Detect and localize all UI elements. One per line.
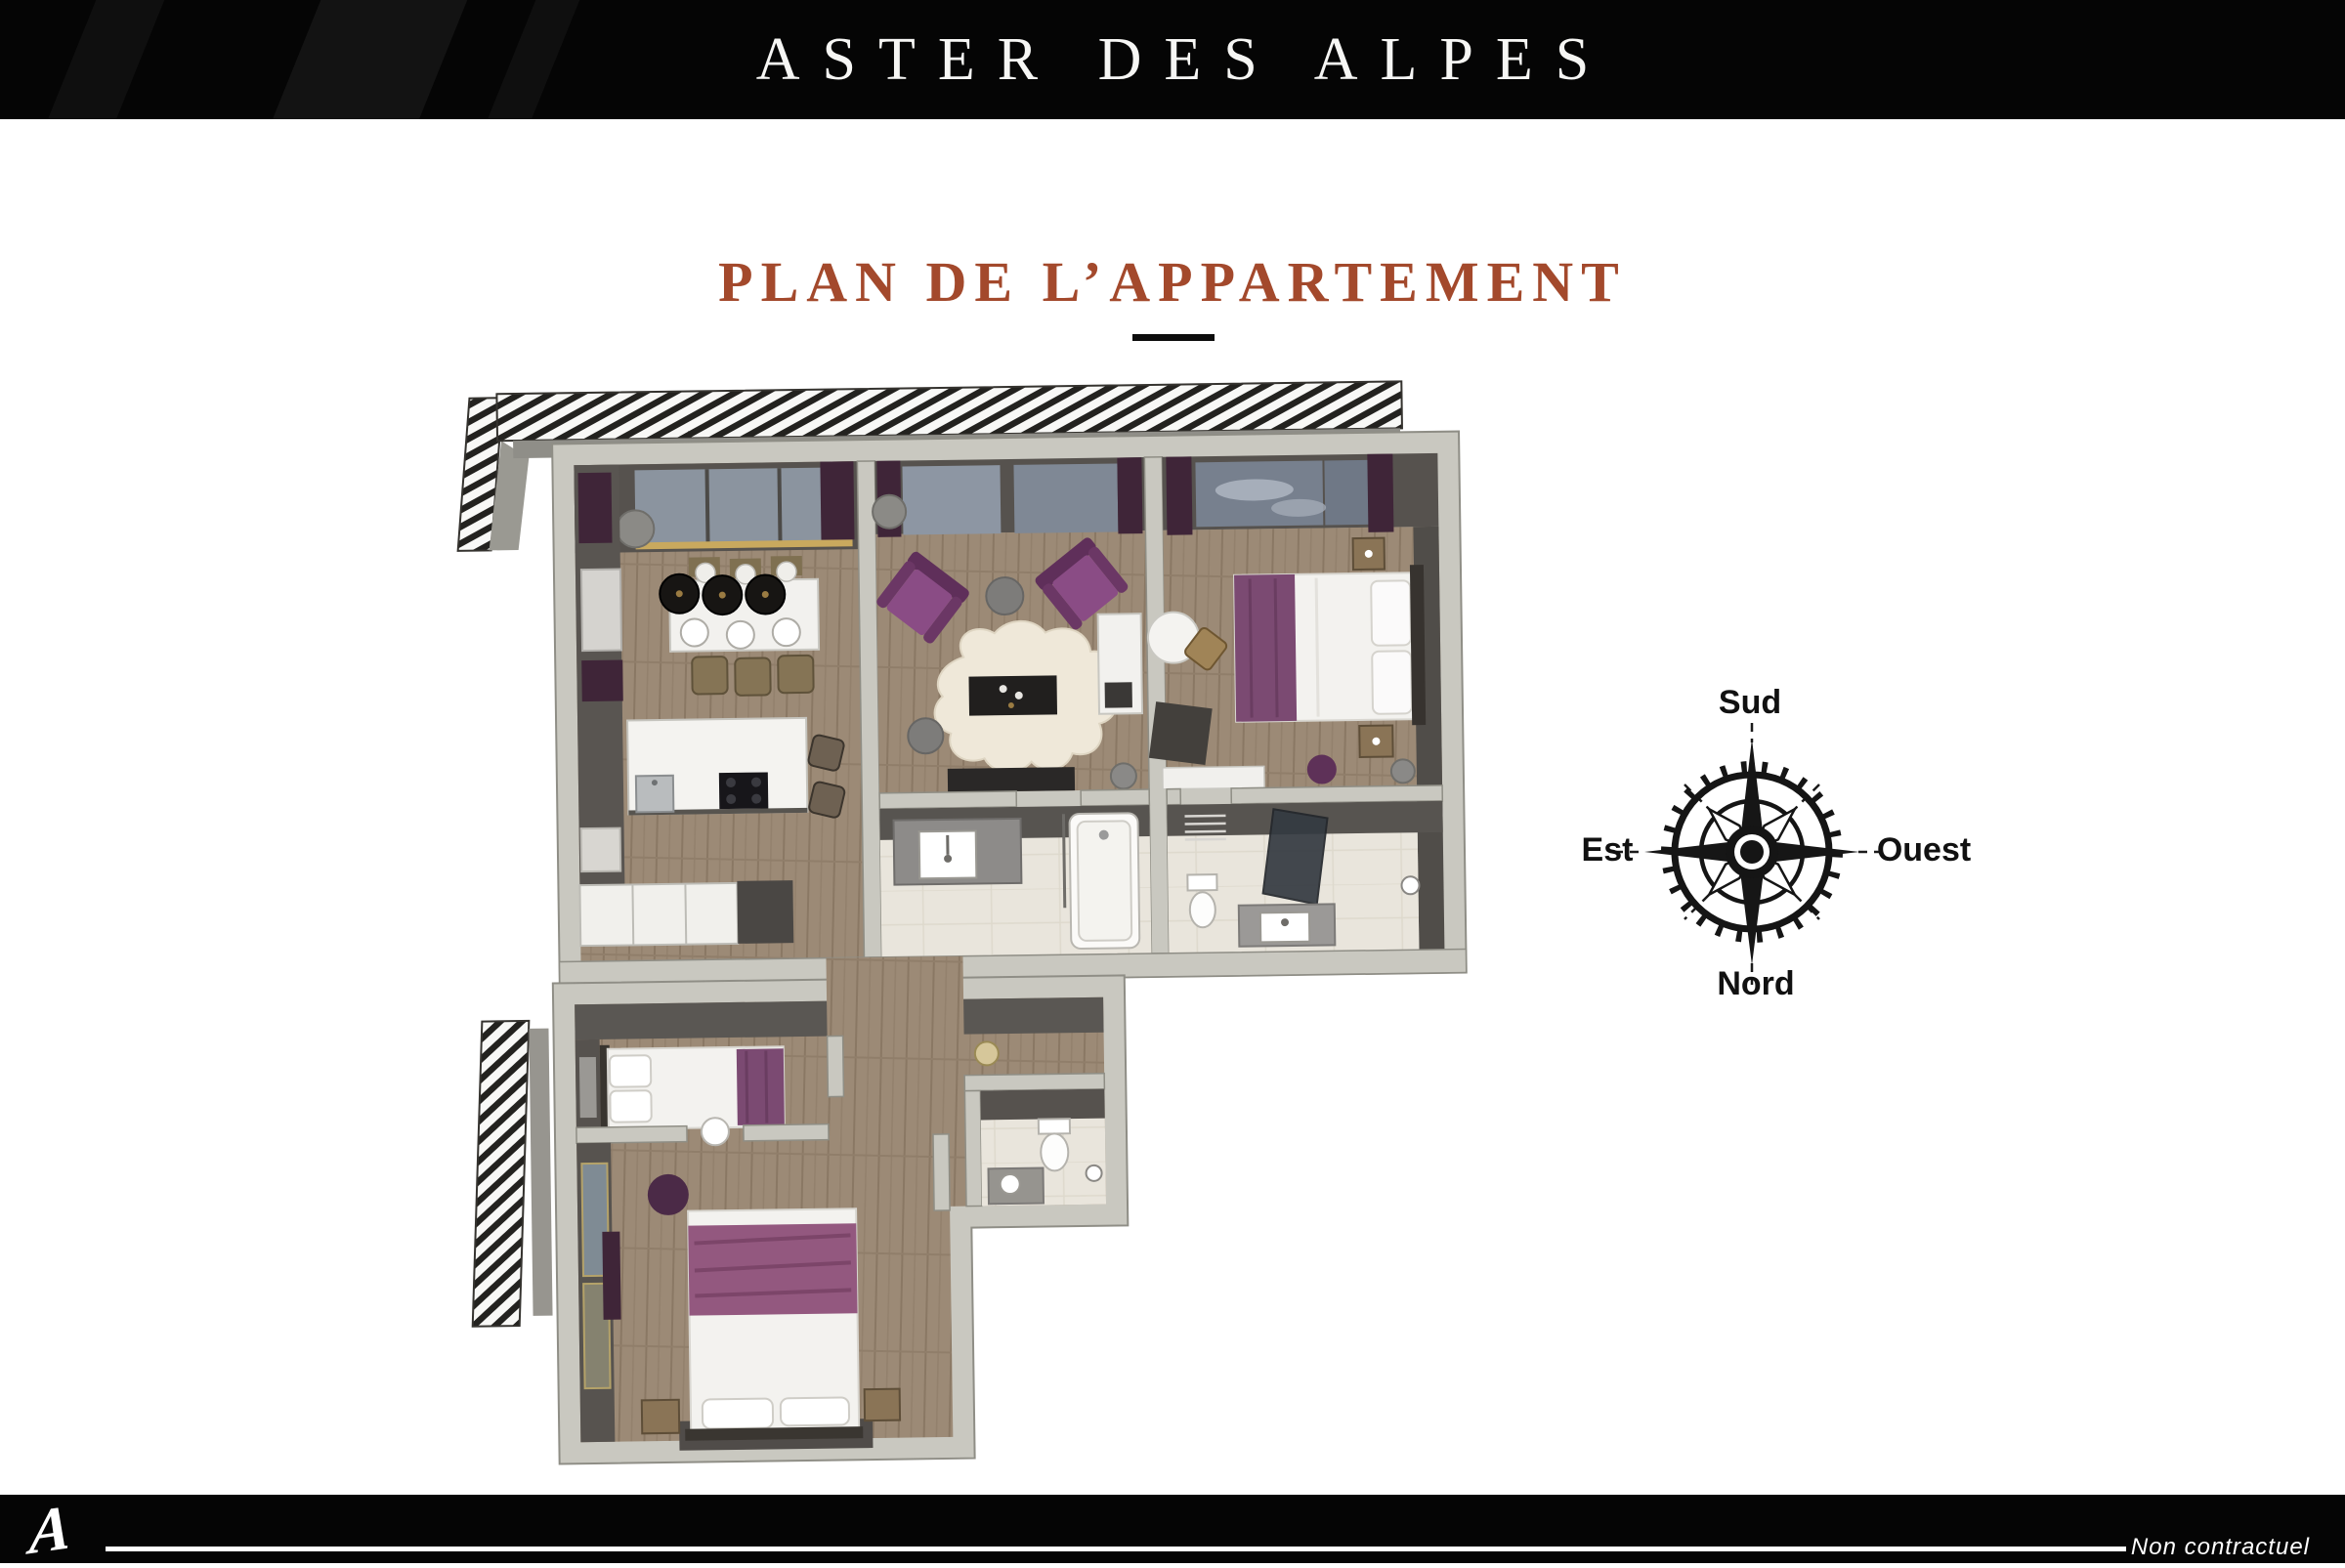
footer-logo: A (28, 1496, 72, 1565)
ceiling-lamp (975, 1041, 999, 1065)
pendant-lights (660, 572, 786, 615)
coffee-table (968, 675, 1057, 715)
decorative-stripe (33, 0, 173, 119)
shower-glass (1261, 808, 1328, 905)
pedestal-basin (702, 1118, 729, 1145)
compass-label-east: Est (1582, 831, 1634, 869)
compass-label-west: Ouest (1877, 831, 1971, 869)
floor-lamp (1111, 763, 1136, 788)
bathroom-2 (1167, 801, 1444, 954)
footer-bar (0, 1495, 2345, 1563)
compass-label-north: Nord (1717, 965, 1794, 1003)
bathtub (1063, 813, 1139, 949)
decorative-stripe (258, 0, 476, 119)
hallway-opening (826, 956, 963, 1003)
header-bar: ASTER DES ALPES (0, 0, 2345, 119)
desk-chair (1149, 701, 1213, 765)
pouf (908, 718, 943, 753)
floor-plan (454, 379, 1519, 1468)
vanity-sink (894, 819, 1022, 885)
kitchen-island (627, 718, 807, 816)
decorative-stripe (473, 0, 588, 119)
sofa (948, 767, 1075, 792)
compass-label-south: Sud (1719, 684, 1781, 722)
double-bed (676, 1208, 873, 1451)
kitchen-cabinets (579, 880, 793, 946)
dresser (1163, 766, 1264, 788)
balcony-west (468, 1021, 552, 1327)
toilet (1187, 874, 1217, 927)
bathroom-1 (879, 805, 1151, 957)
toilet (1039, 1119, 1071, 1170)
kitchen-dining (574, 461, 864, 961)
footer-rule (106, 1547, 2126, 1551)
brochure-page: { "header": { "brand": "ASTER DES ALPES"… (0, 0, 2345, 1563)
nightstand (642, 1400, 679, 1434)
floor-lamp (1391, 759, 1415, 783)
tv-console (1098, 614, 1142, 714)
lower-block (553, 954, 1131, 1463)
pouf (986, 577, 1024, 615)
compass-hub-center (1740, 840, 1764, 864)
main-block (552, 432, 1467, 986)
double-bed (600, 1042, 785, 1131)
brand-title: ASTER DES ALPES (734, 25, 1612, 95)
paper-holder (1401, 876, 1419, 894)
title-divider (1132, 334, 1215, 341)
bathroom-3 (964, 1074, 1106, 1207)
living-room (872, 457, 1149, 793)
double-bed (1234, 565, 1426, 728)
nightstand (865, 1389, 900, 1420)
vanity-sink (1239, 904, 1336, 946)
disclaimer-text: Non contractuel (2131, 1534, 2310, 1561)
page-title: PLAN DE L’APPARTEMENT (0, 249, 2345, 315)
